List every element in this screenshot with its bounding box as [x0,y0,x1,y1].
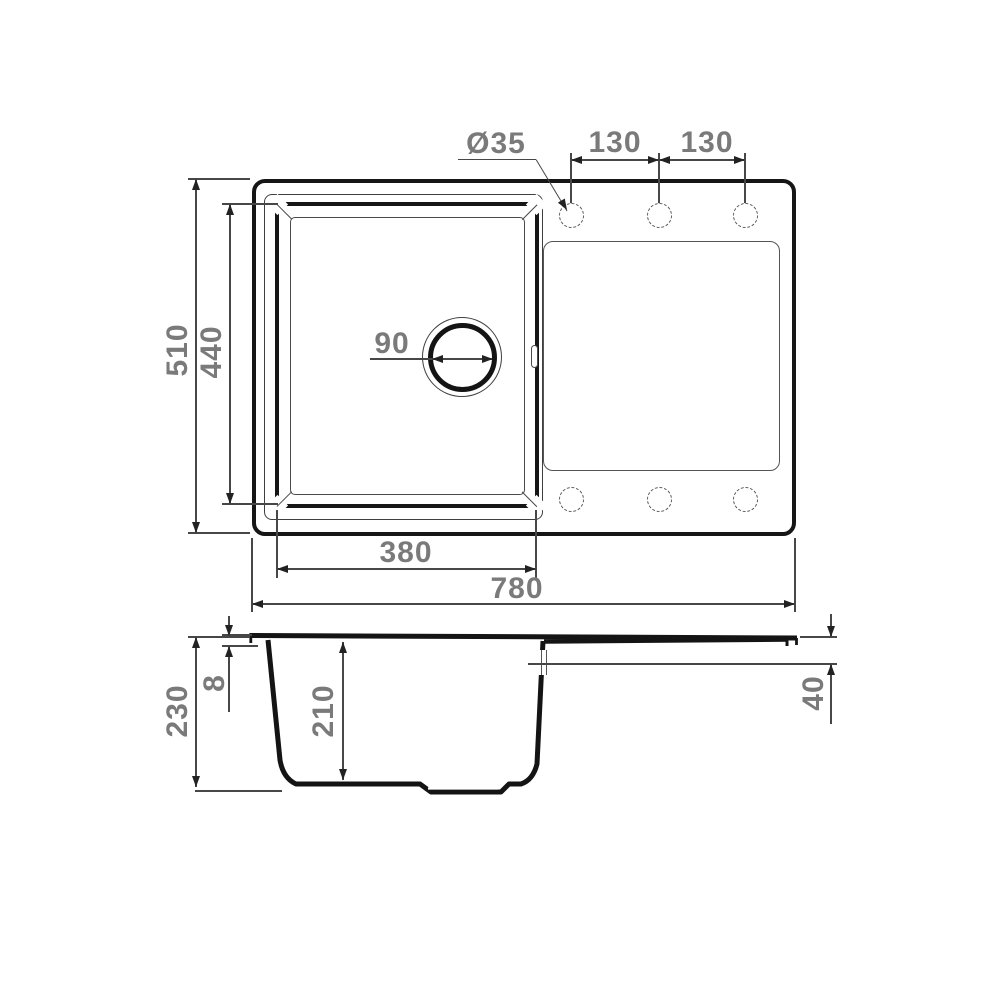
dim-label-height-overall: 510 [161,323,195,376]
section-view [150,608,850,808]
arrowhead [252,600,263,608]
dim-label-faucet-hole: Ø35 [466,127,526,161]
ext-line [528,663,837,664]
ext-line [195,790,282,791]
faucet-hole-top-2 [647,203,672,228]
arrowhead [192,776,200,787]
dim-label-depth-overall: 230 [161,684,195,737]
dim-label-drain: 90 [374,327,409,361]
arrowhead [734,156,745,164]
dim-line-height-bowl [229,204,230,504]
arrowhead [571,156,582,164]
dim-line-bowl-depth [342,642,343,780]
sink-technical-drawing: 130 130 Ø35 510 440 90 380 [0,0,1000,1000]
dim-label-height-bowl: 440 [195,325,229,378]
dim-label-width-bowl: 380 [379,536,432,570]
arrowhead [225,646,233,657]
faucet-hole-top-3 [733,203,758,228]
overflow-notch [531,345,538,368]
dim-label-drainer-drop: 40 [797,675,831,710]
arrowhead [226,204,234,215]
arrowhead [659,156,670,164]
drainboard-outline [543,241,780,471]
arrowhead [225,625,233,636]
arrowhead [226,493,234,504]
arrowhead [827,664,835,675]
dim-label-rim-edge: 8 [198,674,232,692]
faucet-hole-leader-underline [458,159,536,160]
arrowhead [432,355,443,363]
arrowhead [827,626,835,637]
arrowhead [784,600,795,608]
arrowhead [482,355,493,363]
arrowhead [192,637,200,648]
dim-label-bowl-depth: 210 [307,684,341,737]
dim-label-width-overall: 780 [490,572,543,606]
faucet-hole-bottom-2 [647,487,672,512]
faucet-hole-bottom-3 [733,487,758,512]
dim-line-depth-overall [195,637,196,787]
drainboard-surface-line [544,640,788,642]
arrowhead [192,522,200,533]
arrowhead [277,565,288,573]
deck-surface-line [250,636,797,639]
dim-label-hole-spacing-right: 130 [680,126,733,160]
dim-label-hole-spacing-left: 130 [588,126,641,160]
arrowhead [648,156,659,164]
arrowhead [339,642,347,653]
arrowhead [339,769,347,780]
arrowhead [192,179,200,190]
dim-line-drain [370,358,492,359]
faucet-hole-bottom-1 [559,487,584,512]
